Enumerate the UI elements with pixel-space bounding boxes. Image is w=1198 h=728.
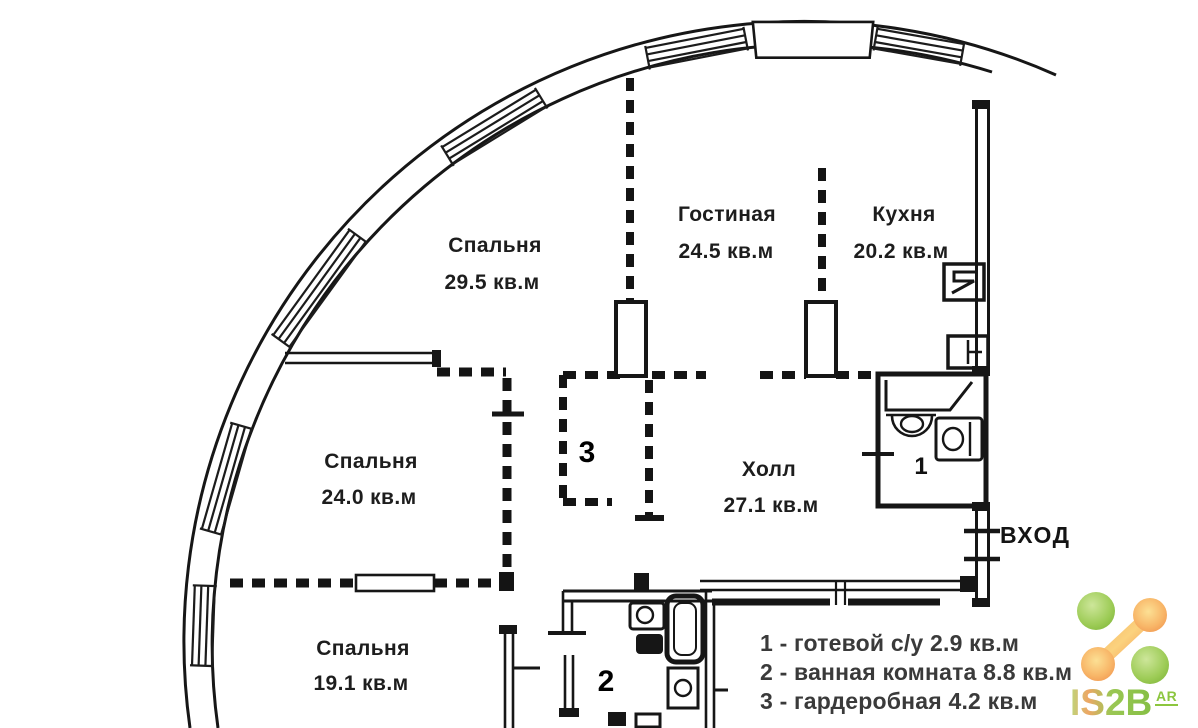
room-name: Спальня (324, 450, 418, 473)
entrance-label: ВХОД (1000, 522, 1070, 548)
bathtub-icon (667, 596, 703, 662)
marker-guest-wc: 1 (914, 453, 927, 480)
room-label-hall: Холл 27.1 кв.м (723, 458, 818, 517)
room-name: Холл (742, 458, 796, 481)
room-area: 24.0 кв.м (321, 486, 416, 509)
toilet-icon (636, 634, 663, 654)
guest-wc-room (862, 374, 986, 506)
room-area: 20.2 кв.м (853, 240, 948, 263)
bathroom-room (548, 573, 712, 727)
column-pillar-left (616, 302, 646, 376)
room-area: 24.5 кв.м (678, 240, 773, 263)
legend-item-1: 1 - готевой с/у 2.9 кв.м (760, 630, 1019, 656)
room-label-living: Гостиная 24.5 кв.м (678, 203, 776, 263)
kitchen-sink-icon (948, 336, 988, 368)
legend: 1 - готевой с/у 2.9 кв.м 2 - ванная комн… (760, 630, 1072, 714)
arc-window-2 (200, 423, 253, 535)
marker-wardrobe: 3 (579, 436, 596, 469)
column-pillar-right (806, 302, 836, 376)
logo-suffix-text: AR (1156, 688, 1177, 704)
washing-machine-icon (668, 668, 698, 708)
bedroom-bottom-right-wall (499, 625, 540, 728)
legend-item-3: 3 - гардеробная 4.2 кв.м (760, 688, 1038, 714)
logo-green-circle-bottom (1131, 646, 1169, 684)
partition-bedrooms-with-door (230, 575, 503, 591)
room-name: Гостиная (678, 203, 776, 226)
room-area: 29.5 кв.м (444, 271, 539, 294)
room-name: Спальня (316, 637, 410, 660)
logo-orange-blob-bottom (1081, 647, 1115, 681)
logo-green-circle-top (1077, 592, 1115, 630)
room-label-bedroom-top: Спальня 29.5 кв.м (444, 234, 541, 294)
room-label-kitchen: Кухня 20.2 кв.м (853, 203, 948, 263)
logo-orange-blob-top (1133, 598, 1167, 632)
legend-item-2: 2 - ванная комната 8.8 кв.м (760, 659, 1072, 685)
marker-bathroom: 2 (598, 665, 615, 698)
room-name: Спальня (448, 234, 542, 257)
logo-brand-text: IS2B (1070, 682, 1152, 723)
wall-under-top-bedroom (285, 350, 506, 372)
room-area: 27.1 кв.м (723, 494, 818, 517)
partition-bedroom-hall (492, 378, 524, 591)
arc-window-3 (272, 229, 368, 348)
room-area: 19.1 кв.м (313, 672, 408, 695)
room-label-bedroom-middle: Спальня 24.0 кв.м (321, 450, 417, 509)
room-name: Кухня (872, 203, 935, 226)
room-label-bedroom-bottom: Спальня 19.1 кв.м (313, 637, 409, 695)
balcony-door (753, 22, 873, 58)
is2b-logo: IS2B AR (1070, 592, 1178, 723)
floor-plan-page: Спальня 29.5 кв.м Гостиная 24.5 кв.м Кух… (0, 0, 1198, 728)
floor-plan-drawing: Спальня 29.5 кв.м Гостиная 24.5 кв.м Кух… (0, 0, 1198, 728)
